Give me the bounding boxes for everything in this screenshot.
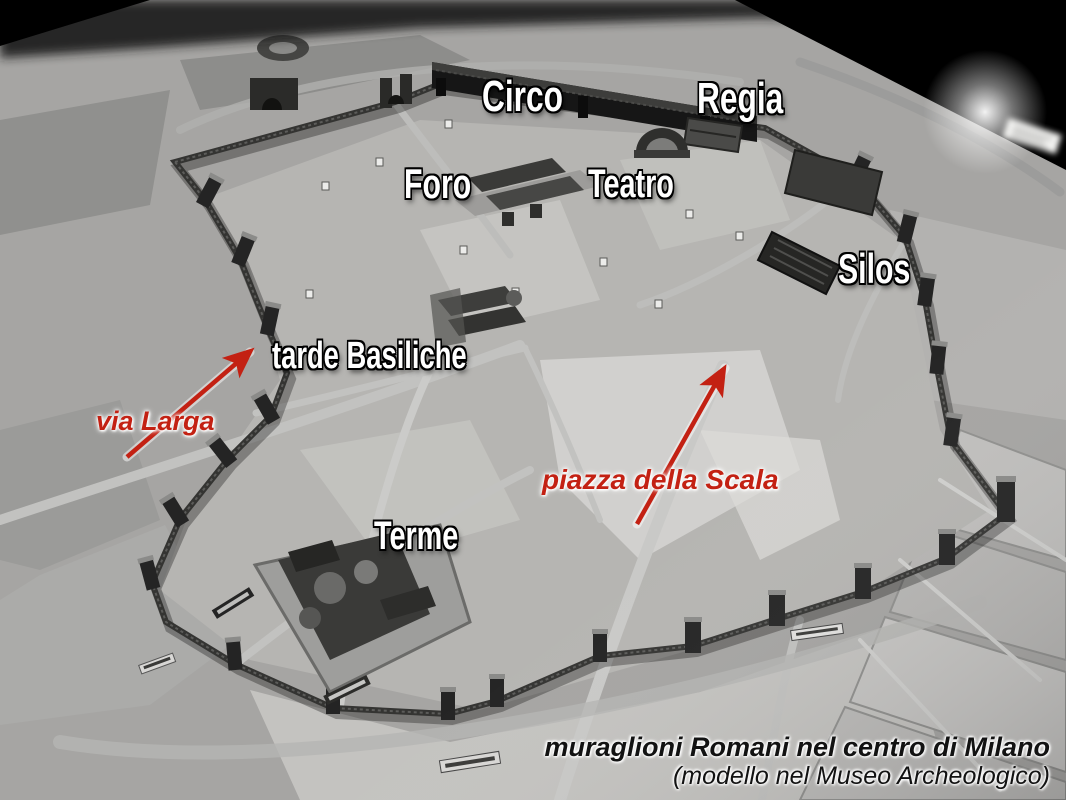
photo-of-city-model: Circo Regia Foro Teatro Silos tarde Basi… bbox=[0, 0, 1066, 800]
city-model-scene bbox=[0, 0, 1066, 800]
photo-vignette bbox=[0, 0, 1066, 800]
